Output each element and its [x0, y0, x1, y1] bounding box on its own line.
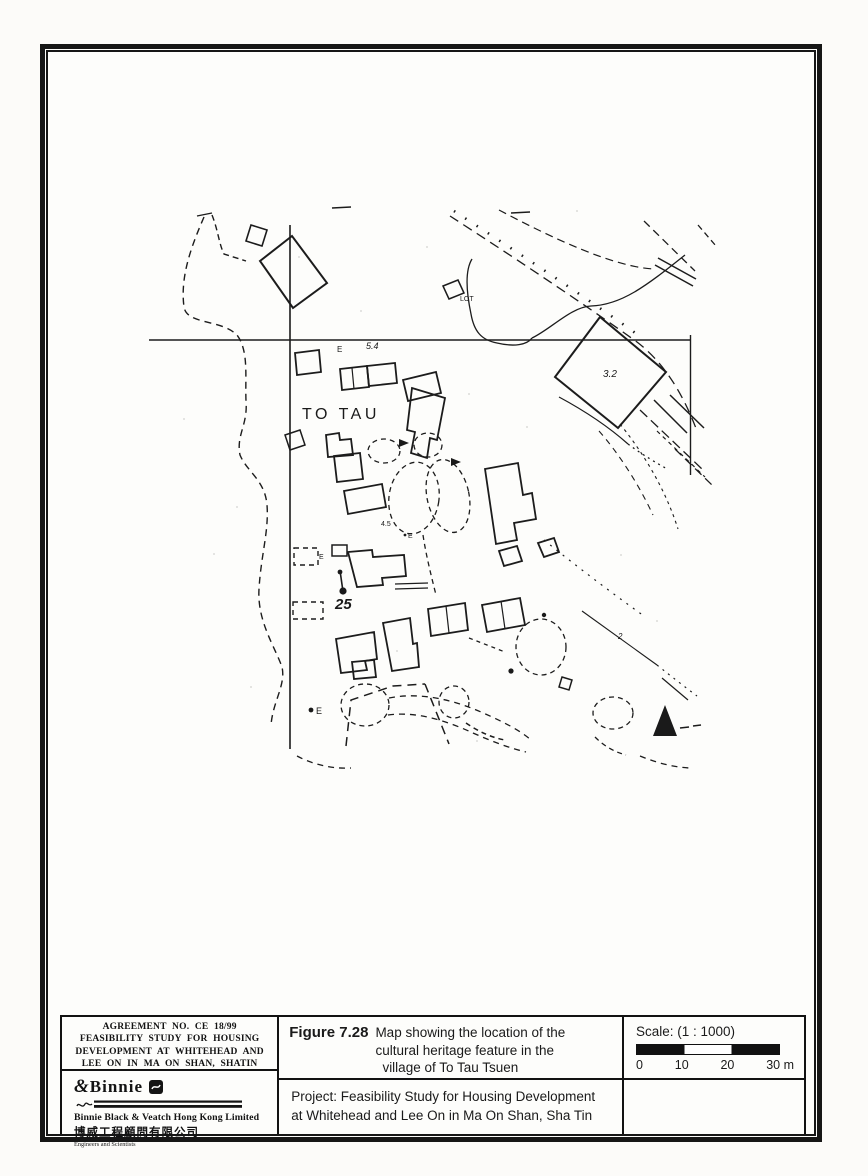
logo-wordmark: Binnie: [90, 1077, 143, 1097]
drawing-frame: TO TAU 25 LOT E 5.4 3.2 4.5 E E E 2: [40, 44, 822, 1142]
figure-caption-line: village of To Tau Tsuen: [375, 1059, 565, 1077]
scale-tick: 20: [720, 1058, 734, 1072]
spot-height-32: 3.2: [603, 369, 617, 380]
scale-bar: [636, 1044, 780, 1055]
spot-height-54: 5.4: [366, 341, 379, 351]
grid-lines: [149, 207, 691, 749]
company-logo: & Binnie: [74, 1076, 267, 1098]
feature-number-label: 25: [334, 596, 352, 613]
agreement-line: AGREEMENT NO. CE 18/99: [62, 1021, 277, 1033]
point-symbols: [309, 439, 547, 712]
figure-caption-line: cultural heritage feature in the: [375, 1042, 565, 1060]
scale-label: Scale: (1 : 1000): [636, 1024, 794, 1039]
project-line: Project: Feasibility Study for Housing D…: [291, 1088, 622, 1107]
title-block-left-column: AGREEMENT NO. CE 18/99 FEASIBILITY STUDY…: [62, 1017, 279, 1134]
scanned-figure-page: TO TAU 25 LOT E 5.4 3.2 4.5 E E E 2: [0, 0, 868, 1176]
buildings: [246, 225, 666, 690]
north-arrow-icon: [653, 705, 701, 736]
slope-hatching: [450, 210, 716, 768]
figure-caption: Map showing the location of the cultural…: [375, 1024, 565, 1078]
spot-height-45: 4.5: [381, 521, 391, 528]
village-name-label: TO TAU: [302, 406, 380, 423]
figure-caption-box: Figure 7.28 Map showing the location of …: [279, 1017, 622, 1080]
coastline-contour: [183, 213, 283, 725]
spot-label-e-mid: E: [408, 533, 413, 540]
spot-label-e-upper: E: [337, 345, 342, 354]
site-boundary: [346, 684, 505, 746]
logo-ampersand: &: [74, 1076, 89, 1098]
scale-tick: 10: [675, 1058, 689, 1072]
empty-box: [624, 1080, 804, 1134]
scale-tick: 30 m: [766, 1058, 794, 1072]
binnie-logo-icon: [149, 1080, 163, 1094]
agreement-line: FEASIBILITY STUDY FOR HOUSING: [62, 1033, 277, 1045]
title-block-middle-column: Figure 7.28 Map showing the location of …: [279, 1017, 624, 1134]
project-box: Project: Feasibility Study for Housing D…: [279, 1080, 622, 1134]
title-block-right-column: Scale: (1 : 1000) 0 10 20 30 m: [624, 1017, 804, 1134]
company-name-english: Binnie Black & Veatch Hong Kong Limited: [74, 1112, 267, 1123]
spot-height-2: 2: [617, 632, 623, 641]
company-tagline: Engineers and Scientists: [74, 1141, 267, 1148]
figure-number: Figure 7.28: [289, 1024, 368, 1078]
agreement-line: LEE ON IN MA ON SHAN, SHATIN: [62, 1058, 277, 1070]
scale-ticks: 0 10 20 30 m: [636, 1058, 794, 1072]
scale-tick: 0: [636, 1058, 643, 1072]
logo-underline-flourish: [74, 1099, 244, 1110]
company-name-chinese: 博威工程顧問有限公司: [74, 1124, 267, 1140]
project-line: at Whitehead and Lee On in Ma On Shan, S…: [291, 1107, 622, 1126]
company-box: & Binnie Binnie Black & Ve: [62, 1071, 277, 1148]
heritage-feature-marker: [338, 570, 347, 595]
spot-label-e-small: E: [319, 554, 324, 561]
title-block: AGREEMENT NO. CE 18/99 FEASIBILITY STUDY…: [60, 1015, 806, 1134]
agreement-box: AGREEMENT NO. CE 18/99 FEASIBILITY STUDY…: [62, 1017, 277, 1071]
site-map: TO TAU 25 LOT E 5.4 3.2 4.5 E E E 2: [139, 194, 719, 779]
drawing-frame-inner: TO TAU 25 LOT E 5.4 3.2 4.5 E E E 2: [46, 50, 816, 1136]
lot-label: LOT: [460, 296, 474, 303]
figure-caption-line: Map showing the location of the: [375, 1024, 565, 1042]
spot-label-e-lower: E: [316, 706, 322, 716]
agreement-line: DEVELOPMENT AT WHITEHEAD AND: [62, 1046, 277, 1058]
scale-box: Scale: (1 : 1000) 0 10 20 30 m: [624, 1017, 804, 1080]
